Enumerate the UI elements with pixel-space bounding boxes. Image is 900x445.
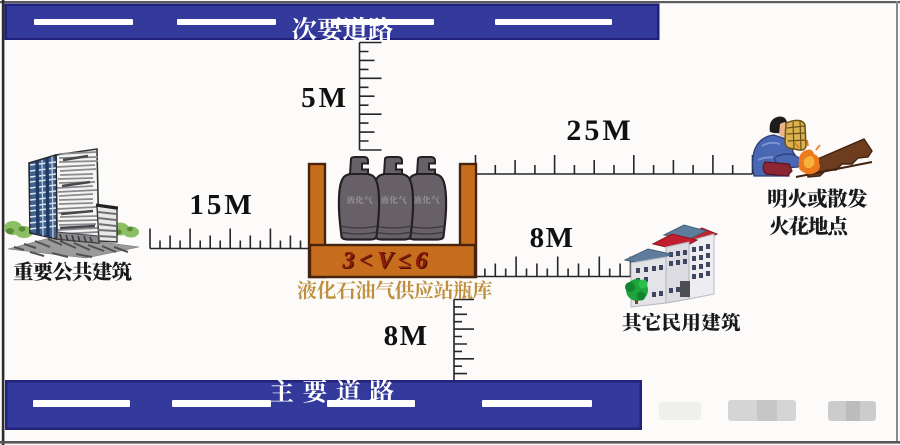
svg-text:5M: 5M <box>301 82 349 114</box>
svg-text:8M: 8M <box>384 320 429 352</box>
svg-text:25M: 25M <box>566 114 633 147</box>
svg-text:8M: 8M <box>530 222 575 254</box>
svg-text:3<V≤6: 3<V≤6 <box>341 248 431 274</box>
svg-text:15M: 15M <box>189 189 254 221</box>
